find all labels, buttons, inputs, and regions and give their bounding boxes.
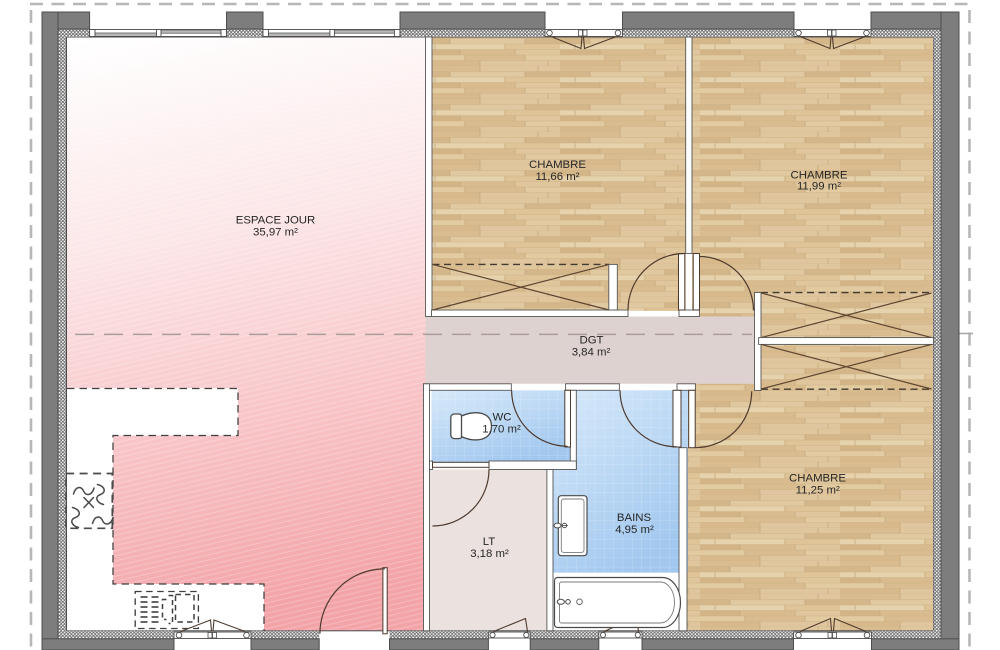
svg-text:3,84 m²: 3,84 m² (572, 347, 611, 359)
svg-text:LT: LT (483, 536, 495, 548)
svg-text:CHAMBRE: CHAMBRE (789, 473, 846, 485)
svg-text:CHAMBRE: CHAMBRE (529, 159, 586, 171)
svg-text:11,66 m²: 11,66 m² (535, 171, 579, 183)
svg-text:1,70 m²: 1,70 m² (482, 424, 521, 436)
svg-text:3,18 m²: 3,18 m² (470, 548, 509, 560)
svg-text:4,95 m²: 4,95 m² (615, 524, 654, 536)
svg-text:DGT: DGT (579, 335, 603, 347)
svg-text:BAINS: BAINS (617, 512, 652, 524)
svg-text:11,25 m²: 11,25 m² (796, 485, 840, 497)
svg-text:ESPACE JOUR: ESPACE JOUR (236, 215, 316, 227)
svg-text:11,99 m²: 11,99 m² (797, 181, 841, 193)
svg-text:35,97 m²: 35,97 m² (253, 227, 298, 239)
svg-text:WC: WC (493, 412, 512, 424)
